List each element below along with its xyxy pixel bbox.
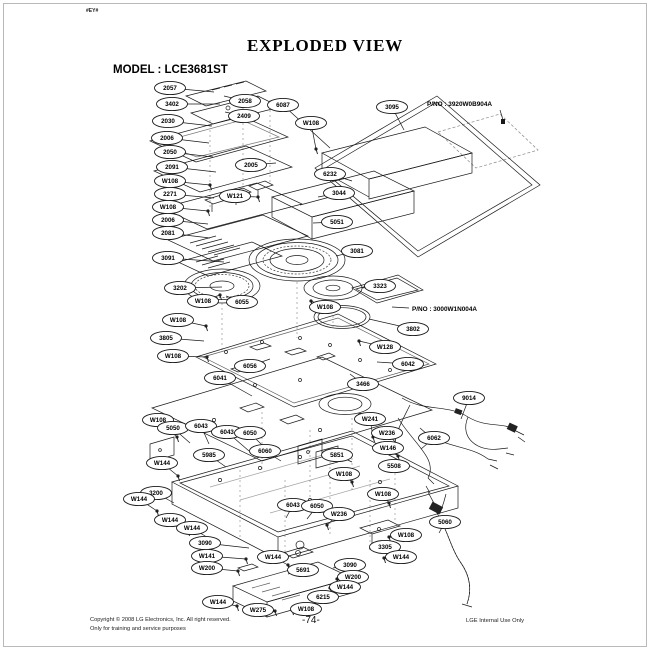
part-callout-W200: W200	[192, 561, 240, 576]
part-callout-2005: 2005	[236, 158, 277, 171]
part-callout-3323: 3323	[362, 279, 396, 292]
manual-page: #EY# EXPLODED VIEW MODEL : LCE3681ST	[0, 0, 650, 650]
svg-text:W241: W241	[362, 416, 379, 423]
svg-text:5050: 5050	[166, 425, 180, 432]
svg-text:W144: W144	[131, 496, 148, 503]
part-callout-2006: 2006	[153, 213, 209, 226]
svg-text:W236: W236	[379, 430, 396, 437]
part-callout-3090: 3090	[333, 558, 366, 571]
svg-text:6050: 6050	[243, 430, 257, 437]
svg-text:2005: 2005	[244, 162, 258, 169]
svg-text:3090: 3090	[198, 540, 212, 547]
svg-text:2030: 2030	[161, 118, 175, 125]
svg-text:2409: 2409	[237, 113, 251, 120]
part-callout-5985: 5985	[194, 448, 227, 467]
svg-text:W144: W144	[184, 525, 201, 532]
part-callout-W108: W108	[296, 116, 327, 154]
part-callout-2081: 2081	[153, 226, 211, 239]
part-callout-2058: 2058	[224, 94, 261, 107]
svg-text:W108: W108	[336, 471, 353, 478]
page-number: -74-	[302, 615, 320, 626]
svg-text:6232: 6232	[323, 171, 337, 178]
svg-text:P/NO : 3000W1N004A: P/NO : 3000W1N004A	[412, 306, 477, 313]
svg-text:P/NO : 3920W0B904A: P/NO : 3920W0B904A	[427, 101, 492, 108]
part-callout-5060: 5060	[430, 515, 461, 533]
part-callout-W275: W275	[243, 603, 277, 616]
svg-text:6055: 6055	[235, 299, 249, 306]
part-callout-3095: 3095	[377, 100, 408, 130]
svg-text:W146: W146	[380, 445, 397, 452]
part-callout-6056: 6056	[235, 359, 271, 373]
svg-text:3466: 3466	[356, 381, 370, 388]
svg-text:6043: 6043	[194, 423, 208, 430]
part-callout-6232: 6232	[315, 167, 353, 181]
svg-text:3805: 3805	[159, 335, 173, 342]
svg-text:W144: W144	[210, 599, 227, 606]
part-callout-3802: 3802	[369, 319, 429, 336]
part-callout-5851: 5851	[322, 448, 353, 462]
svg-text:3044: 3044	[332, 190, 346, 197]
svg-text:6043: 6043	[220, 429, 234, 436]
svg-text:2091: 2091	[165, 164, 179, 171]
part-callout-W108: W108	[290, 602, 321, 615]
svg-text:6050: 6050	[310, 503, 324, 510]
part-callout-9014: 9014	[454, 391, 485, 419]
pno-label-2: P/NO : 3000W1N004A	[392, 306, 477, 313]
svg-text:5051: 5051	[330, 219, 344, 226]
part-callout-2057: 2057	[155, 81, 215, 94]
svg-text:2271: 2271	[163, 191, 177, 198]
svg-text:5060: 5060	[438, 519, 452, 526]
svg-text:W144: W144	[154, 460, 171, 467]
svg-text:6062: 6062	[427, 435, 441, 442]
part-callout-W128: W128	[357, 339, 400, 353]
part-callout-W144: W144	[258, 550, 290, 570]
part-callout-3402: 3402	[157, 97, 221, 110]
part-callout-3202: 3202	[165, 281, 223, 294]
svg-text:2006: 2006	[160, 135, 174, 142]
svg-text:W236: W236	[331, 511, 348, 518]
svg-text:W144: W144	[337, 584, 354, 591]
svg-text:5985: 5985	[202, 452, 216, 459]
part-callout-6215: 6215	[308, 590, 339, 603]
svg-text:2050: 2050	[163, 149, 177, 156]
svg-text:9014: 9014	[462, 395, 476, 402]
svg-text:3305: 3305	[378, 544, 392, 551]
svg-text:W108: W108	[375, 491, 392, 498]
part-callout-2091: 2091	[157, 160, 217, 173]
part-callout-2050: 2050	[155, 145, 214, 158]
svg-text:W144: W144	[265, 554, 282, 561]
svg-text:3095: 3095	[385, 104, 399, 111]
part-callout-3466: 3466	[348, 374, 379, 391]
svg-text:W108: W108	[298, 606, 315, 613]
part-callout-6060: 6060	[250, 444, 282, 461]
part-callout-5051: 5051	[313, 215, 353, 228]
part-callout-5508: 5508	[379, 459, 410, 472]
part-callout-6042: 6042	[377, 357, 424, 370]
part-callout-W108: W108	[158, 349, 209, 362]
part-callout-6041: 6041	[205, 371, 253, 396]
svg-text:5508: 5508	[387, 463, 401, 470]
svg-text:3802: 3802	[406, 326, 420, 333]
svg-text:6041: 6041	[213, 375, 227, 382]
part-callout-W146: W146	[373, 441, 404, 461]
copyright-note: Copyright © 2008 LG Electronics, Inc. Al…	[90, 616, 231, 634]
svg-text:3090: 3090	[343, 562, 357, 569]
part-callout-W108: W108	[368, 487, 399, 508]
svg-text:W108: W108	[317, 304, 334, 311]
svg-text:6060: 6060	[258, 448, 272, 455]
svg-text:W121: W121	[227, 193, 244, 200]
diagram-callouts: 205734022030200620502091W1082271W1082006…	[0, 0, 650, 650]
part-callout-3090: 3090	[190, 536, 250, 549]
copyright-line-1: Copyright © 2008 LG Electronics, Inc. Al…	[90, 616, 231, 625]
part-callout-3091: 3091	[153, 251, 225, 264]
svg-text:W144: W144	[393, 554, 410, 561]
part-callout-W144: W144	[147, 456, 180, 481]
part-callout-2409: 2409	[225, 109, 260, 122]
copyright-line-2: Only for training and service purposes	[90, 625, 231, 634]
svg-text:W128: W128	[377, 344, 394, 351]
part-callout-3081: 3081	[336, 244, 373, 257]
part-callout-W108: W108	[188, 293, 222, 307]
svg-text:W275: W275	[250, 607, 267, 614]
pno-label-1: P/NO : 3920W0B904A	[427, 101, 503, 120]
svg-text:3323: 3323	[373, 283, 387, 290]
part-callout-2030: 2030	[153, 114, 213, 127]
internal-use-note: LGE Internal Use Only	[466, 618, 524, 624]
part-callout-W108: W108	[329, 467, 360, 487]
part-callout-W121: W121	[220, 189, 260, 202]
svg-text:6215: 6215	[316, 594, 330, 601]
part-callout-5691: 5691	[288, 563, 319, 576]
part-callout-W108: W108	[309, 299, 340, 313]
svg-text:2058: 2058	[238, 98, 252, 105]
svg-text:W200: W200	[199, 565, 216, 572]
svg-text:W108: W108	[160, 204, 177, 211]
part-callout-6062: 6062	[419, 431, 450, 449]
svg-text:5691: 5691	[296, 567, 310, 574]
svg-text:6056: 6056	[243, 363, 257, 370]
part-callout-W144: W144	[124, 492, 159, 516]
svg-text:2006: 2006	[161, 217, 175, 224]
part-callout-W108: W108	[387, 528, 421, 542]
svg-text:3202: 3202	[173, 285, 187, 292]
svg-text:6087: 6087	[276, 102, 290, 109]
svg-text:2081: 2081	[161, 230, 175, 237]
part-callout-2271: 2271	[155, 187, 215, 200]
part-callout-5050: 5050	[158, 421, 191, 443]
svg-text:W108: W108	[162, 178, 179, 185]
svg-text:2057: 2057	[163, 85, 177, 92]
part-callout-W108: W108	[163, 313, 208, 331]
part-callout-W236: W236	[324, 507, 355, 530]
part-callout-3805: 3805	[151, 331, 205, 344]
svg-text:W108: W108	[195, 298, 212, 305]
svg-text:W108: W108	[165, 353, 182, 360]
svg-text:5851: 5851	[330, 452, 344, 459]
svg-text:W144: W144	[162, 517, 179, 524]
svg-text:3081: 3081	[350, 248, 364, 255]
svg-text:6042: 6042	[401, 361, 415, 368]
svg-text:3091: 3091	[161, 255, 175, 262]
svg-text:W108: W108	[170, 317, 187, 324]
svg-text:W141: W141	[199, 553, 216, 560]
svg-text:3402: 3402	[165, 101, 179, 108]
part-callout-2006: 2006	[152, 131, 210, 144]
svg-text:W108: W108	[398, 532, 415, 539]
part-callout-3044: 3044	[318, 186, 355, 199]
part-callout-W144: W144	[203, 595, 239, 611]
part-callout-6055: 6055	[226, 295, 258, 308]
svg-text:W108: W108	[303, 120, 320, 127]
svg-text:6043: 6043	[286, 502, 300, 509]
